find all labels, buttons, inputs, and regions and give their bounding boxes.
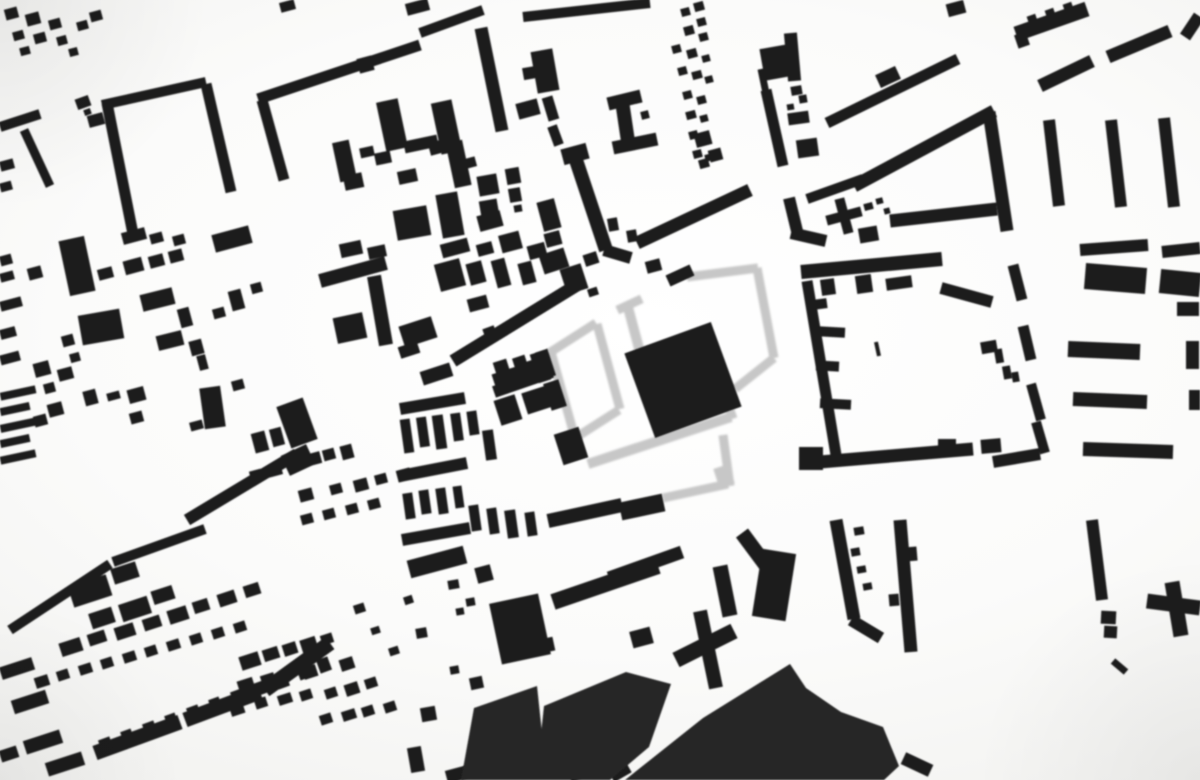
building-block [388, 646, 400, 657]
building-block [449, 665, 459, 674]
building-block [376, 98, 408, 151]
building-bar [523, 3, 650, 17]
building-block [166, 605, 189, 624]
building-block [515, 98, 540, 119]
building-bar [575, 410, 619, 438]
building-block [469, 676, 484, 690]
building-block [491, 258, 512, 289]
building-block [359, 146, 375, 159]
building-block [420, 363, 454, 386]
building-block [607, 217, 619, 232]
building-block [856, 565, 866, 573]
building-block [269, 427, 285, 447]
map-canvas [0, 0, 1200, 780]
building-bar [1068, 349, 1140, 352]
building-block [374, 150, 392, 165]
building-block [177, 307, 194, 328]
black-buildings-layer [0, 0, 1200, 780]
building-bar [187, 454, 297, 520]
building-block [343, 681, 360, 697]
building-bar [851, 620, 881, 638]
building-block [853, 526, 864, 536]
building-bar [1080, 245, 1148, 250]
building-bar [900, 520, 911, 652]
building-block [440, 238, 471, 259]
building-block [396, 467, 413, 482]
building-block [4, 7, 19, 21]
building-bar [789, 198, 797, 231]
building-block [106, 390, 121, 401]
building-block [0, 351, 21, 366]
building-block [61, 334, 75, 348]
building-block [820, 398, 851, 410]
building-block [216, 590, 237, 608]
building-block [100, 656, 115, 669]
building-block [0, 746, 19, 763]
building-block [474, 564, 494, 584]
building-block [453, 485, 465, 508]
building-block [407, 546, 468, 578]
building-block [407, 746, 425, 773]
building-bar [547, 97, 554, 120]
building-block [353, 603, 366, 615]
building-block [11, 690, 50, 714]
building-block [78, 662, 93, 676]
building-bar [941, 288, 992, 302]
building-block [113, 622, 136, 641]
building-block [698, 32, 709, 42]
building-block [415, 627, 428, 639]
building-block [148, 253, 166, 268]
building-block [87, 630, 108, 647]
building-block [405, 0, 430, 16]
building-block [48, 18, 62, 31]
building-block [45, 751, 85, 776]
building-block [901, 752, 934, 776]
building-block [76, 20, 89, 32]
building-block [522, 66, 538, 80]
building-block [172, 234, 186, 247]
building-bar [402, 528, 470, 540]
building-block [420, 706, 437, 722]
building-block [196, 354, 209, 371]
building-block [468, 504, 482, 531]
building-block [188, 339, 204, 357]
building-block [403, 595, 414, 605]
building-block [539, 637, 556, 654]
building-block [402, 492, 416, 519]
building-mass [625, 664, 899, 780]
building-block [1002, 365, 1012, 379]
building-block [322, 508, 336, 521]
building-bar [258, 45, 420, 99]
building-bar [549, 323, 596, 353]
building-block [904, 547, 917, 562]
building-block [25, 11, 42, 26]
building-block [455, 607, 464, 615]
building-block [27, 265, 44, 280]
building-block [393, 205, 432, 240]
building-block [476, 173, 499, 196]
building-bar [1031, 384, 1041, 420]
building-block [798, 94, 807, 103]
building-block [680, 7, 691, 17]
building-block [883, 207, 890, 214]
building-block [12, 30, 25, 42]
building-block [863, 202, 874, 211]
building-block [796, 138, 819, 159]
building-block [299, 688, 314, 701]
building-block [685, 110, 697, 120]
building-bar [757, 268, 774, 358]
building-bar [637, 190, 750, 243]
building-block [816, 360, 839, 371]
building-block [683, 25, 695, 36]
building-block [341, 708, 357, 722]
building-block [78, 309, 125, 346]
building-bar [801, 259, 942, 272]
building-bar [107, 103, 133, 234]
building-block [626, 229, 638, 243]
building-block [799, 447, 823, 470]
building-block [23, 729, 63, 754]
building-block [432, 414, 448, 449]
building-block [671, 44, 682, 54]
building-block [1186, 341, 1199, 369]
building-block [888, 594, 899, 607]
building-block [587, 287, 599, 298]
building-bar [1049, 120, 1059, 206]
building-bar [113, 529, 205, 562]
building-block [787, 103, 795, 110]
building-block [0, 449, 36, 464]
building-block [319, 712, 334, 725]
building-block [367, 498, 381, 511]
building-block [228, 289, 246, 312]
building-block [885, 275, 912, 291]
building-block [1101, 611, 1117, 625]
building-block [0, 296, 23, 311]
large-dark-masses-layer [461, 664, 899, 780]
building-block [56, 668, 71, 681]
building-bar [807, 179, 863, 199]
building-block [582, 251, 599, 267]
building-block [122, 650, 137, 664]
building-block [476, 241, 495, 257]
building-block [397, 168, 418, 185]
building-block [701, 54, 711, 63]
building-bar [1073, 399, 1147, 402]
building-block [199, 386, 226, 430]
building-block [56, 35, 68, 46]
building-bar [102, 82, 206, 105]
building-bar [735, 358, 774, 389]
building-block [482, 429, 497, 460]
building-block [640, 110, 650, 120]
building-block [938, 439, 956, 449]
building-block [339, 240, 363, 258]
building-block [383, 700, 398, 713]
building-bar [1164, 118, 1174, 207]
building-block [144, 644, 159, 657]
building-block [818, 326, 845, 337]
building-block [416, 416, 430, 447]
building-bar [766, 90, 783, 166]
building-block [281, 641, 298, 657]
building-bar [262, 100, 284, 180]
building-block [58, 236, 95, 296]
building-bar [552, 126, 559, 145]
building-block [0, 326, 17, 340]
building-block [374, 473, 388, 486]
building-block [212, 307, 226, 320]
building-block [231, 379, 245, 392]
building-block [693, 1, 705, 12]
building-block [361, 704, 376, 717]
building-bar [993, 454, 1040, 462]
building-block [149, 231, 164, 244]
building-block [505, 167, 522, 185]
building-block [862, 582, 872, 590]
building-bar [24, 130, 50, 186]
building-block [536, 198, 561, 232]
building-block [0, 158, 15, 171]
building-block [333, 312, 368, 344]
building-block [123, 257, 145, 275]
building-block [0, 270, 15, 282]
building-block [156, 330, 185, 351]
building-block [339, 444, 354, 461]
building-bar [663, 484, 728, 498]
building-block [1104, 626, 1118, 639]
building-bar [854, 111, 994, 186]
building-bar [1185, 16, 1199, 37]
building-block [83, 108, 92, 116]
building-block [0, 402, 31, 416]
building-block [33, 32, 47, 45]
building-block [353, 477, 370, 492]
building-bar [1092, 520, 1102, 600]
building-bar [1036, 422, 1045, 453]
building-bar [820, 449, 973, 462]
building-block [524, 511, 537, 536]
building-block [279, 0, 296, 13]
building-block [88, 607, 116, 630]
building-block [338, 656, 355, 672]
building-block [494, 394, 523, 426]
building-block [233, 620, 248, 633]
building-block [467, 295, 490, 313]
building-block [486, 507, 500, 534]
building-block [820, 278, 836, 296]
building-block [686, 48, 698, 59]
building-block [370, 626, 381, 635]
building-block [946, 0, 967, 17]
building-bar [1083, 449, 1173, 452]
building-block [32, 360, 51, 378]
building-block [34, 674, 51, 689]
building-block [465, 597, 475, 606]
building-bar [574, 154, 606, 250]
building-block [43, 382, 56, 395]
building-block [435, 487, 449, 514]
building-block [87, 112, 106, 128]
building-block [58, 637, 83, 657]
building-block [696, 95, 707, 105]
figure-ground-map [0, 0, 1200, 780]
building-block [543, 230, 562, 248]
building-bar [1085, 276, 1146, 281]
building-bar [890, 209, 997, 221]
building-block [476, 210, 503, 232]
building-block [19, 46, 31, 56]
building-bar [613, 139, 657, 148]
building-bar [876, 342, 879, 356]
building-block [398, 316, 437, 347]
building-block [994, 348, 1004, 363]
building-bar [1113, 661, 1126, 672]
building-block [677, 66, 688, 76]
building-block [619, 494, 666, 521]
building-block [0, 385, 36, 400]
building-bar [604, 250, 631, 258]
building-block [329, 483, 343, 496]
building-bar [720, 566, 730, 616]
building-block [192, 598, 211, 614]
building-block [262, 646, 281, 662]
building-block [89, 10, 103, 23]
building-block [699, 114, 709, 123]
building-block [790, 85, 802, 96]
building-block [139, 287, 175, 311]
building-bar [687, 268, 758, 277]
building-block [517, 261, 536, 286]
building-bar [1040, 61, 1092, 86]
building-block [692, 149, 703, 159]
building-block [69, 352, 81, 363]
building-block [704, 75, 714, 84]
building-block [508, 187, 522, 203]
building-block [211, 225, 252, 252]
building-block [189, 632, 204, 645]
building-mass [461, 686, 547, 780]
building-bar [597, 324, 620, 409]
building-bar [791, 233, 826, 241]
building-block [243, 582, 262, 598]
building-block [0, 434, 31, 448]
building-block [691, 70, 703, 80]
building-bar [400, 398, 465, 409]
building-bar [700, 611, 716, 688]
building-block [82, 389, 98, 407]
building-block [696, 17, 707, 27]
building-block [168, 248, 185, 263]
building-block [435, 191, 464, 238]
building-bar [1162, 248, 1200, 252]
building-block [250, 282, 263, 295]
building-block [398, 341, 421, 359]
building-block [498, 231, 523, 254]
building-bar [481, 28, 502, 131]
building-block [560, 143, 589, 165]
building-block [126, 386, 146, 404]
building-block [47, 401, 65, 417]
building-block [0, 657, 35, 680]
building-bar [206, 84, 231, 192]
building-block [281, 444, 316, 476]
building-block [238, 651, 261, 670]
building-block [0, 254, 13, 267]
building-block [364, 676, 379, 689]
building-block [466, 410, 479, 435]
building-block [434, 258, 466, 292]
building-block [189, 419, 204, 431]
building-block [129, 411, 144, 425]
building-block [447, 579, 459, 590]
building-block [1177, 302, 1199, 316]
building-block [875, 197, 883, 205]
building-block [980, 438, 1001, 454]
building-block [787, 111, 809, 126]
building-block [622, 302, 644, 351]
building-block [645, 258, 663, 273]
building-block [850, 547, 860, 556]
building-block [489, 593, 551, 664]
building-block [0, 417, 38, 433]
building-block [1189, 390, 1200, 410]
building-bar [420, 10, 483, 33]
building-block [324, 686, 339, 699]
building-block [75, 95, 92, 110]
building-block [504, 509, 519, 538]
building-block [150, 585, 175, 605]
building-block [682, 90, 693, 100]
building-block [166, 638, 181, 652]
building-block [858, 225, 879, 243]
building-block [0, 181, 13, 193]
building-block [855, 274, 873, 294]
building-block [345, 503, 359, 516]
building-bar [1013, 265, 1022, 300]
building-block [298, 487, 315, 502]
building-bar [1108, 31, 1170, 57]
building-block [450, 412, 464, 441]
building-block [322, 448, 336, 462]
building-bar [1023, 326, 1031, 360]
building-bar [1160, 281, 1200, 285]
building-bar [548, 505, 622, 521]
building-block [400, 418, 415, 453]
building-block [465, 260, 486, 285]
building-block [418, 489, 431, 514]
building-block [57, 366, 75, 381]
building-block [211, 626, 226, 639]
building-bar [0, 114, 40, 127]
building-bar [1111, 120, 1121, 207]
building-block [118, 596, 152, 622]
building-block [142, 615, 163, 632]
building-block [629, 627, 654, 649]
building-bar [374, 276, 386, 345]
building-bar [836, 520, 854, 619]
building-block [97, 266, 114, 281]
building-block [251, 431, 270, 454]
building-block [513, 204, 522, 212]
building-bar [1172, 582, 1181, 636]
building-block [1011, 371, 1020, 382]
building-block [300, 513, 314, 526]
building-block [277, 692, 293, 706]
